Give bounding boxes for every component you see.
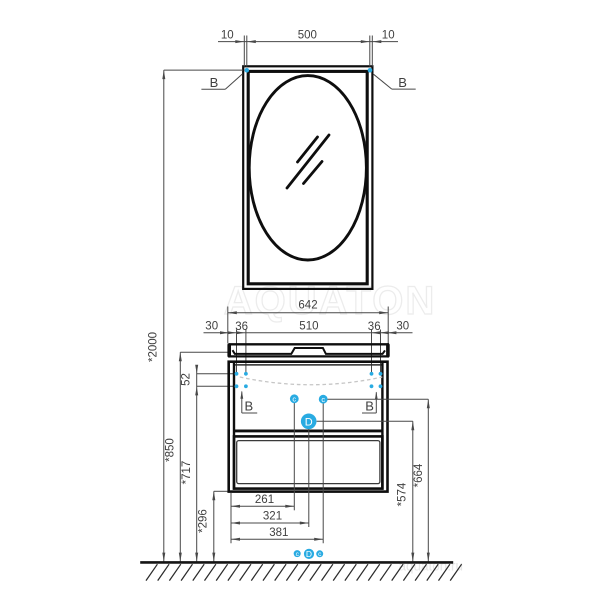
svg-text:*2000: *2000	[147, 332, 159, 362]
svg-text:c: c	[321, 395, 325, 404]
svg-text:30: 30	[396, 321, 409, 333]
svg-text:36: 36	[235, 321, 248, 333]
svg-text:*717: *717	[181, 461, 193, 485]
svg-text:510: 510	[299, 321, 318, 333]
svg-text:*850: *850	[165, 438, 177, 462]
svg-text:52: 52	[180, 373, 192, 386]
svg-text:10: 10	[221, 30, 234, 42]
svg-text:AQUATON: AQUATON	[224, 279, 437, 323]
svg-text:B: B	[210, 75, 219, 90]
svg-text:500: 500	[298, 30, 317, 42]
svg-text:261: 261	[255, 494, 274, 506]
svg-text:642: 642	[298, 299, 317, 311]
svg-text:B: B	[244, 399, 253, 414]
svg-text:aquaton.ru: aquaton.ru	[398, 559, 463, 574]
svg-text:B: B	[398, 75, 407, 90]
svg-text:*664: *664	[413, 463, 425, 487]
svg-text:36: 36	[368, 321, 381, 333]
svg-text:D: D	[305, 416, 313, 428]
svg-text:B: B	[365, 399, 374, 414]
svg-text:D: D	[306, 549, 312, 559]
svg-text:381: 381	[269, 527, 288, 539]
svg-text:c: c	[292, 395, 296, 404]
svg-text:10: 10	[382, 30, 395, 42]
svg-text:*296: *296	[197, 509, 209, 533]
svg-text:321: 321	[263, 511, 282, 523]
svg-text:30: 30	[205, 321, 218, 333]
svg-text:*574: *574	[396, 482, 408, 506]
